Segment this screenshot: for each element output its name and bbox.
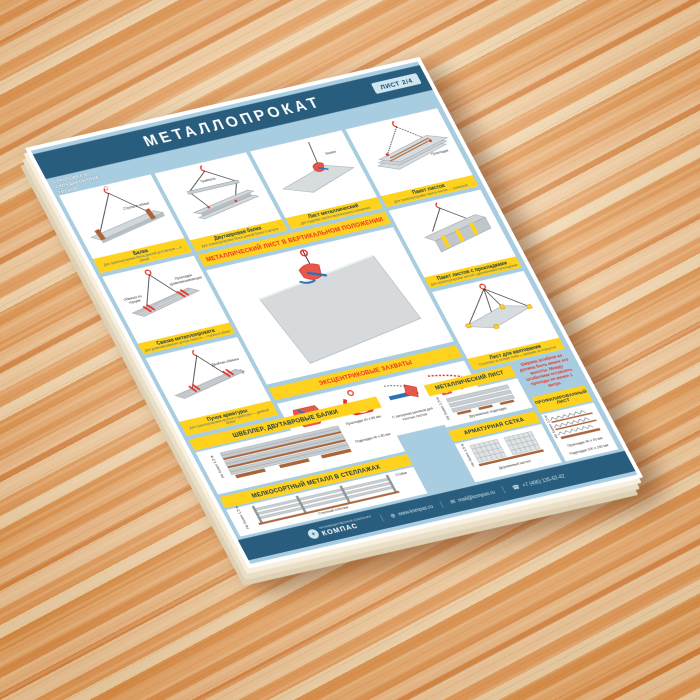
footer-divider: |: [501, 486, 507, 495]
email-address: mail@kompas.ru: [457, 490, 496, 503]
website-url: www.kompas.ru: [397, 504, 434, 517]
email-item: ✉ mail@kompas.ru: [449, 489, 497, 506]
photo-scene: МЕТАЛЛОПРОКАТ ЛИСТ 2/4 СТРОПОВКА И СКЛАД…: [0, 0, 700, 700]
phone-item: ☎ +7 (495) 135-62-42: [511, 473, 566, 491]
footer-divider: |: [438, 500, 444, 509]
envelope-icon: ✉: [449, 498, 457, 506]
brand-logo: ✶ ПРОИЗВОДСТВЕННАЯ КОМПАНИЯ КОМПАС: [306, 516, 375, 540]
poster-sheet: МЕТАЛЛОПРОКАТ ЛИСТ 2/4 СТРОПОВКА И СКЛАД…: [25, 57, 643, 569]
globe-icon: ⊕: [389, 512, 397, 520]
phone-number: +7 (495) 135-62-42: [521, 474, 566, 489]
sheet-number-badge: ЛИСТ 2/4: [371, 73, 422, 94]
website-item: ⊕ www.kompas.ru: [389, 503, 435, 519]
posts-label: Стойки: [388, 470, 414, 479]
phone-icon: ☎: [511, 483, 522, 491]
footer-divider: |: [379, 514, 385, 523]
pads-label: Подкладки 40 х 80 мм: [351, 432, 394, 445]
spacers-label: Прокладки 40 х 80 мм: [342, 414, 385, 427]
bundle-illustration: [105, 257, 224, 337]
poster-pad: МЕТАЛЛОПРОКАТ ЛИСТ 2/4 СТРОПОВКА И СКЛАД…: [25, 57, 643, 569]
compass-logo-icon: ✶: [306, 528, 321, 539]
poster-frame: МЕТАЛЛОПРОКАТ ЛИСТ 2/4 СТРОПОВКА И СКЛАД…: [31, 61, 638, 563]
